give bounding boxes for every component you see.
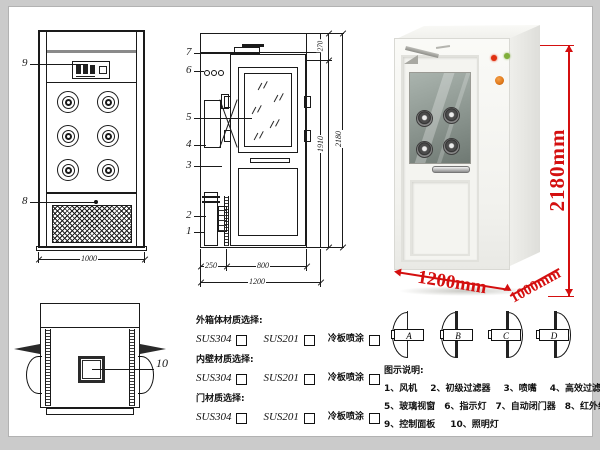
material-option-label: SUS304 xyxy=(196,333,231,345)
legend-item: 1、风机 xyxy=(384,381,417,394)
door-option-frame: A xyxy=(394,329,424,341)
material-option-label: SUS304 xyxy=(196,411,231,423)
hinge-icon xyxy=(304,130,311,142)
spec-sheet: 9 8 1000 xyxy=(0,0,600,450)
plan-left-wall xyxy=(45,329,51,406)
photo-nozzle-icon xyxy=(443,107,460,124)
door-jamb-icon xyxy=(440,330,444,339)
material-group-title: 内壁材质选择: xyxy=(196,355,254,366)
red-arrow-down xyxy=(565,289,573,296)
material-group-title: 门材质选择: xyxy=(196,394,245,405)
part-label-3: 3 xyxy=(186,160,192,171)
nozzle-icon xyxy=(57,125,79,147)
nozzle-icon xyxy=(97,91,119,113)
door-option-d: D xyxy=(537,310,571,360)
plan-right-wall xyxy=(129,329,135,406)
door-lower-panel xyxy=(238,168,298,236)
part-label-7: 7 xyxy=(186,47,192,58)
part-label-1: 1 xyxy=(186,226,192,237)
door-option-frame: C xyxy=(491,329,521,341)
legend-item: 3、喷嘴 xyxy=(504,381,537,394)
plan-top-band xyxy=(40,303,140,328)
dim-2180: 2180 xyxy=(335,130,343,148)
dim-line-1910 xyxy=(328,33,329,247)
legend-title: 图示说明: xyxy=(384,366,424,377)
grille-icon xyxy=(52,205,132,243)
material-checkbox[interactable] xyxy=(304,413,315,424)
photo-nozzle-icon xyxy=(416,141,433,158)
legend-item: 5、玻璃视窗 xyxy=(384,399,435,412)
door-window-inner xyxy=(244,73,292,147)
dim-1910: 1910 xyxy=(317,135,325,153)
material-checkbox[interactable] xyxy=(369,374,380,385)
material-option-row: SUS304 SUS201 冷板喷涂 xyxy=(196,411,380,423)
legend-item: 7、自动闭门器 xyxy=(496,399,556,412)
material-option-label: SUS201 xyxy=(263,411,298,423)
filter-flange xyxy=(202,201,220,203)
right-door-wing xyxy=(140,344,166,354)
material-option-label: 冷板喷涂 xyxy=(328,412,364,423)
material-checkbox[interactable] xyxy=(304,335,315,346)
leader-dot xyxy=(94,200,98,204)
front-width-dim: 1000 xyxy=(80,255,98,263)
nozzle-icon xyxy=(57,159,79,181)
part-label-8: 8 xyxy=(22,196,28,207)
front-grille-top-line xyxy=(47,192,136,194)
leader-line xyxy=(194,216,206,217)
leader-line xyxy=(194,53,240,54)
material-checkbox[interactable] xyxy=(236,413,247,424)
filter-grid-icon xyxy=(218,206,227,232)
plan-base xyxy=(46,408,134,415)
material-checkbox[interactable] xyxy=(369,413,380,424)
nozzle-icon xyxy=(97,159,119,181)
nozzle-side-icon xyxy=(221,94,229,109)
legend-item: 6、指示灯 xyxy=(444,399,486,412)
part-label-2: 2 xyxy=(186,210,192,221)
door-option-c: C xyxy=(489,310,523,360)
front-top-band-line xyxy=(47,50,136,53)
material-checkbox[interactable] xyxy=(236,335,247,346)
green-indicator-light xyxy=(504,53,510,59)
front-band-bottom-line xyxy=(47,82,136,83)
material-option-label: 冷板喷涂 xyxy=(328,373,364,384)
leader-line xyxy=(194,145,206,146)
door-option-frame: D xyxy=(539,329,569,341)
material-option-label: SUS304 xyxy=(196,372,231,384)
part-label-4: 4 xyxy=(186,139,192,150)
leader-line-9 xyxy=(30,64,88,65)
material-option-label: 冷板喷涂 xyxy=(328,334,364,345)
material-option-row: SUS304 SUS201 冷板喷涂 xyxy=(196,333,380,345)
nozzle-icon xyxy=(57,91,79,113)
orange-button xyxy=(495,76,504,85)
material-checkbox[interactable] xyxy=(304,374,315,385)
material-option-label: SUS201 xyxy=(263,333,298,345)
material-option-label: SUS201 xyxy=(263,372,298,384)
legend-line-3: 9、控制面板 10、照明灯 xyxy=(384,417,499,430)
legend-item: 9、控制面板 xyxy=(384,417,435,430)
leader-line xyxy=(194,118,252,119)
door-jamb-icon xyxy=(536,330,540,339)
part-label-10: 10 xyxy=(156,358,168,369)
fan-icon xyxy=(204,100,221,148)
material-group-title: 外箱体材质选择: xyxy=(196,316,263,327)
nozzle-icon xyxy=(97,125,119,147)
door-handle-slot xyxy=(250,158,290,163)
photo-nozzle-icon xyxy=(416,110,433,127)
door-option-a: A xyxy=(392,310,426,360)
dim-800: 800 xyxy=(256,262,270,270)
dim-250: 250 xyxy=(204,262,218,270)
red-indicator-light xyxy=(491,55,497,61)
part-label-6: 6 xyxy=(186,65,192,76)
dim-1200: 1200 xyxy=(248,278,266,286)
red-ext-line-bottom xyxy=(548,296,574,297)
material-checkbox[interactable] xyxy=(369,335,380,346)
leader-line xyxy=(194,232,204,233)
door-jamb-icon xyxy=(488,330,492,339)
photo-height-dim: 2180mm xyxy=(545,80,567,260)
part-label-9: 9 xyxy=(22,58,28,69)
material-option-row: SUS304 SUS201 冷板喷涂 xyxy=(196,372,380,384)
door-option-b: B xyxy=(441,310,475,360)
leader-line xyxy=(194,166,222,167)
material-checkbox[interactable] xyxy=(236,374,247,385)
door-closer-arm xyxy=(242,44,264,47)
cabinet-side-face xyxy=(510,25,540,270)
front-base xyxy=(36,246,147,251)
door-jamb-icon xyxy=(391,330,395,339)
photo-door-handle xyxy=(432,166,470,173)
left-door-wing xyxy=(14,344,40,354)
front-right-rail xyxy=(136,31,137,247)
part-label-5: 5 xyxy=(186,112,192,123)
red-arrow-up xyxy=(565,45,573,52)
leader-line-8 xyxy=(30,202,96,203)
leader-line xyxy=(194,71,204,72)
legend-item: 2、初级过滤器 xyxy=(430,381,490,394)
legend-item: 10、照明灯 xyxy=(450,417,499,430)
legend-line-2: 5、玻璃视窗 6、指示灯 7、自动闭门器 8、红外线感应器 xyxy=(384,399,600,412)
legend-item: 8、红外线感应器 xyxy=(565,399,600,412)
door-option-frame: B xyxy=(443,329,473,341)
photo-door-lower-panel xyxy=(410,180,470,256)
hinge-icon xyxy=(304,96,311,108)
legend-item: 4、高效过滤器 xyxy=(550,381,600,394)
dim-270: 270 xyxy=(316,40,324,53)
filter-flange xyxy=(202,196,220,198)
photo-nozzle-icon xyxy=(443,138,460,155)
legend-line-1: 1、风机 2、初级过滤器 3、喷嘴 4、高效过滤器 xyxy=(384,381,600,394)
